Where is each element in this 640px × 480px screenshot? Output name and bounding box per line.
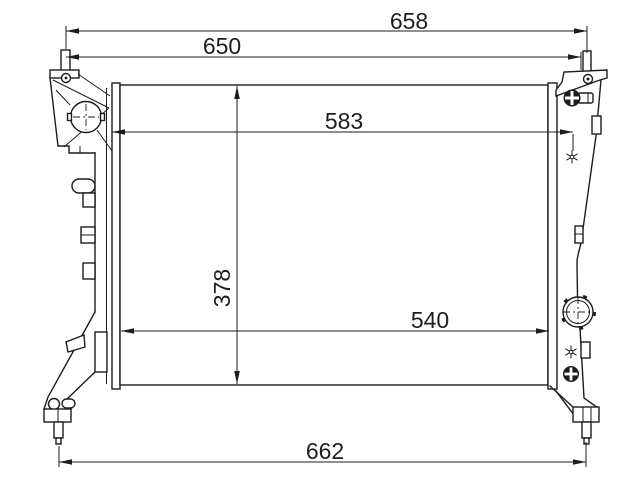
foot-brace <box>550 386 574 408</box>
bracket-hole <box>49 399 60 410</box>
dimension-top-outer-width: 658 <box>66 8 587 53</box>
drain-plug-icon <box>564 367 579 382</box>
edge-tab <box>592 116 601 134</box>
star-screw-icon <box>566 151 577 164</box>
port-nub <box>101 114 105 121</box>
right-bracket-edge-lower <box>580 328 598 408</box>
bracket-bolt-center <box>65 77 68 80</box>
right-bracket-edge-upper <box>577 80 601 297</box>
left-lower-bracket <box>44 312 95 444</box>
right-mounting-foot <box>573 407 599 422</box>
screw-center <box>569 350 573 354</box>
dimension-label: 378 <box>209 269 235 307</box>
right-side-plate <box>548 83 557 389</box>
dimension-label: 540 <box>411 307 449 333</box>
edge-tab <box>581 342 590 358</box>
bracket-strut <box>78 74 110 96</box>
dimension-label: 662 <box>306 438 344 464</box>
arrowhead-left-icon <box>66 28 79 34</box>
bracket-strut <box>56 90 70 105</box>
inlet-plug-icon <box>564 90 580 106</box>
bracket-bolt-center <box>587 78 590 81</box>
dimension-label: 583 <box>325 108 363 134</box>
dimension-label: 658 <box>390 8 428 34</box>
bracket-slot <box>62 399 75 408</box>
left-side-plate <box>112 83 120 389</box>
lower-bracket-step <box>66 335 85 352</box>
arrowhead-right-icon <box>560 129 573 135</box>
right-bracket <box>550 51 607 444</box>
lower-side-channel <box>95 332 107 372</box>
star-screw-icon <box>565 346 576 359</box>
tank-bump <box>72 179 95 193</box>
dimension-bottom-overall-width: 662 <box>59 438 586 467</box>
tank-tab <box>83 263 95 279</box>
radiator-technical-drawing: 658 650 583 378 540 662 <box>0 0 640 480</box>
port-nub <box>68 114 72 121</box>
screw-center <box>570 155 574 159</box>
arrowhead-right-icon <box>574 28 587 34</box>
tank-tab <box>83 193 95 207</box>
filler-cap-icon <box>562 296 595 329</box>
right-bottom-mounting-pin <box>582 422 591 438</box>
lower-bracket-outer-edge <box>44 312 95 409</box>
arrowhead-right-icon <box>573 459 586 465</box>
dimension-top-inner-width: 650 <box>66 33 581 70</box>
arrowhead-left-icon <box>59 459 72 465</box>
bracket-strut <box>97 130 112 151</box>
left-bottom-mounting-pin <box>54 422 63 438</box>
left-top-mounting-pin <box>61 50 70 71</box>
dimension-label: 650 <box>203 33 241 59</box>
right-top-mounting-pin <box>583 51 591 72</box>
pin-tip <box>56 438 61 444</box>
arrowhead-right-icon <box>568 54 581 60</box>
foot-brace <box>556 391 574 415</box>
